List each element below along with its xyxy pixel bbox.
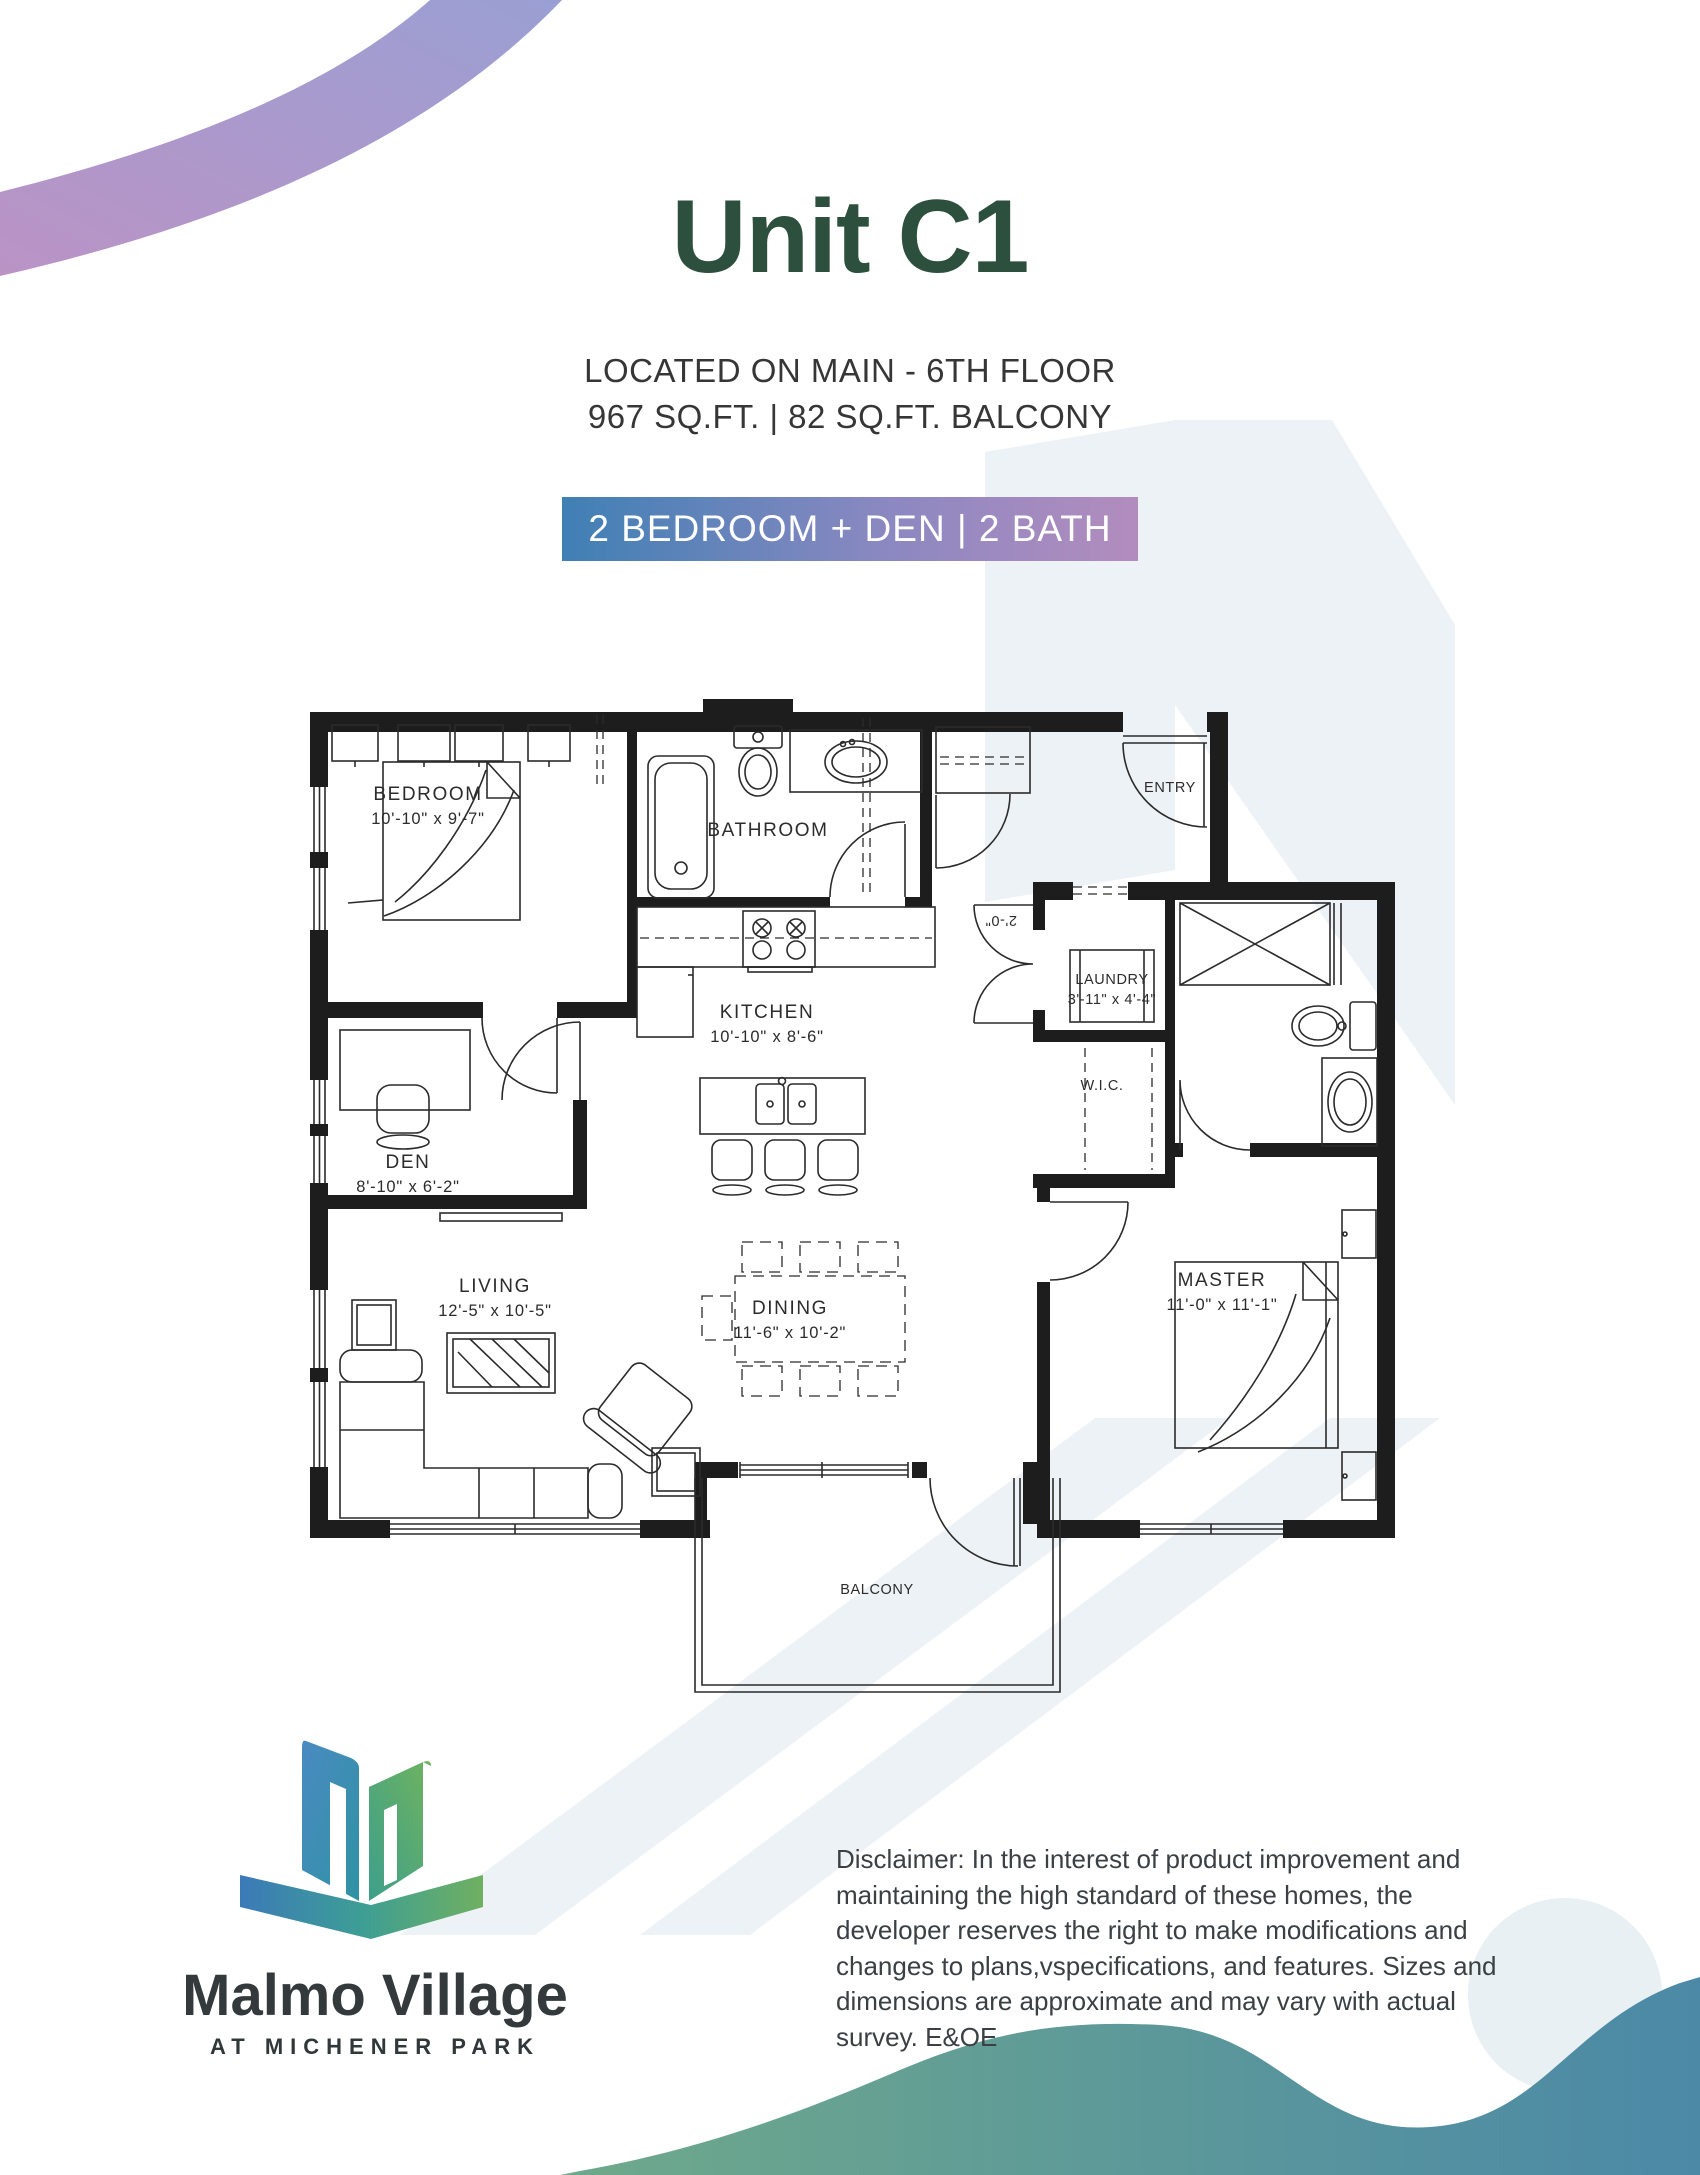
room-dims-bedroom: 10'-10" x 9'-7" [371, 810, 484, 828]
room-dims-kitchen: 10'-10" x 8'-6" [710, 1028, 823, 1046]
malmo-village-logo-mark [240, 1736, 510, 1968]
room-label-den: DEN [386, 1152, 431, 1173]
brand-name: Malmo Village [60, 1962, 690, 2029]
brand-tagline: AT MICHENER PARK [60, 2034, 690, 2060]
bathroom-fixtures [648, 726, 922, 898]
room-label-laundry: LAUNDRY [1075, 972, 1148, 988]
floorplan-brochure-page: Unit C1 LOCATED ON MAIN - 6TH FLOOR 967 … [0, 0, 1700, 2175]
room-label-dining: DINING [752, 1298, 828, 1319]
hall-closet-and-doors [936, 727, 1033, 1023]
room-label-wic: W.I.C. [1080, 1078, 1123, 1094]
room-dims-den: 8'-10" x 6'-2" [356, 1178, 460, 1196]
room-label-entry: ENTRY [1144, 780, 1196, 796]
dining-set-dashed [702, 1242, 905, 1396]
ensuite-fixtures [1180, 903, 1377, 1150]
disclaimer-text: Disclaimer: In the interest of product i… [836, 1842, 1512, 2055]
door-width-label: 2'-0" [985, 912, 1017, 928]
room-label-master: MASTER [1178, 1270, 1267, 1291]
logo-m-mark [240, 1741, 483, 1939]
room-label-bedroom: BEDROOM [373, 784, 482, 805]
room-dims-laundry: 3'-11" x 4'-4" [1068, 992, 1156, 1008]
room-label-kitchen: KITCHEN [720, 1002, 815, 1023]
living-furniture [340, 1300, 704, 1518]
master-furniture [1050, 1202, 1376, 1500]
room-dims-master: 11'-0" x 11'-1" [1166, 1296, 1277, 1314]
room-label-bathroom: BATHROOM [707, 820, 828, 841]
dashed-lines [597, 715, 1152, 1396]
room-dims-living: 12'-5" x 10'-5" [438, 1302, 551, 1320]
room-label-living: LIVING [459, 1276, 531, 1297]
kitchen-fixtures [637, 907, 935, 1195]
room-dims-dining: 11'-6" x 10'-2" [734, 1324, 846, 1342]
room-label-balcony: BALCONY [840, 1582, 914, 1598]
